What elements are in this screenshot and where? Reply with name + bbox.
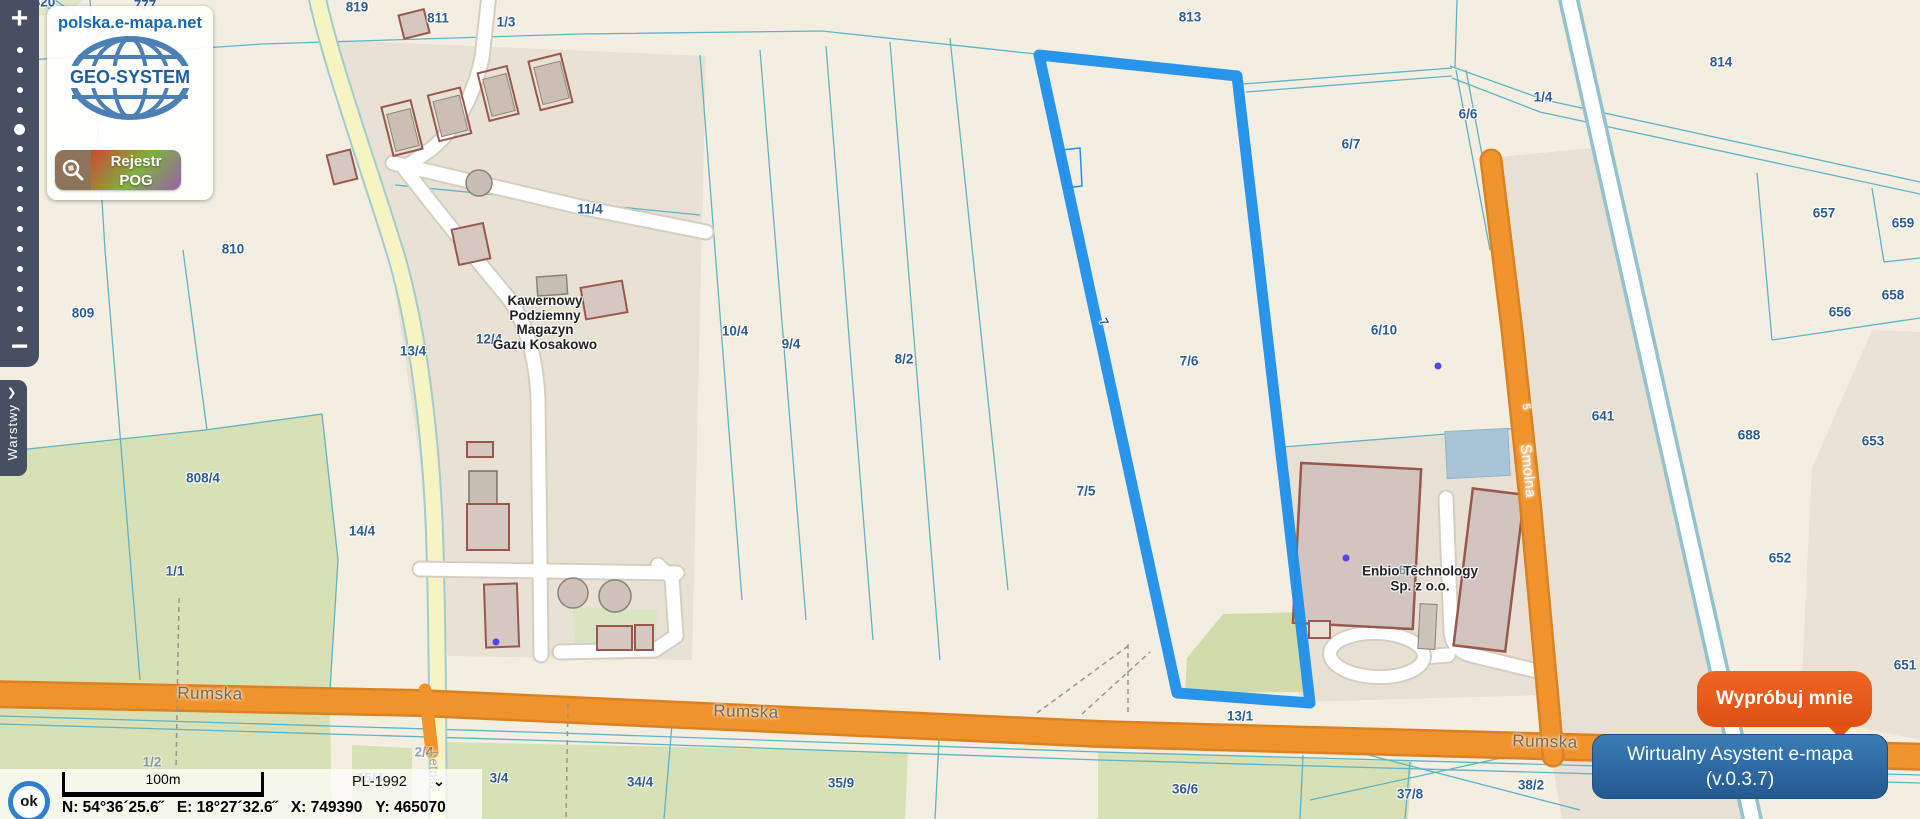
zoom-tick[interactable] [17,87,23,93]
zoom-tick[interactable] [17,286,23,292]
e-mapa-map-viewer: 8207778198111/38138141/46/66/711/4657659… [0,0,1920,819]
zoom-out-button[interactable]: − [0,330,39,366]
try-me-bubble[interactable]: Wypróbuj mnie [1697,671,1872,727]
site-name[interactable]: polska.e-mapa.net [47,14,213,33]
crs-selector[interactable]: PL-1992⌄ [352,774,445,790]
virtual-assistant-button[interactable]: Wirtualny Asystent e-mapa (v.0.3.7) [1592,734,1888,799]
pond [1445,428,1510,478]
chevron-down-icon: ⌄ [433,774,445,790]
scale-label: 100m [65,771,261,787]
branding-card: polska.e-mapa.net GEO-SYSTEM Rejestr POG [47,6,213,200]
coord-n: N: 54°36´25.6˝ [62,799,164,816]
scale-bar: 100m [62,772,264,797]
coordinates-readout: N: 54°36´25.6˝E: 18°27´32.6˝X: 749390Y: … [62,799,459,817]
magnifier-poland-icon [55,150,91,190]
layers-panel-tab[interactable]: ❯ Warstwy [0,380,27,476]
coord-e: E: 18°27´32.6˝ [177,799,278,816]
rejestr-pog-badge[interactable]: Rejestr POG [55,150,181,190]
assistant-title: Wirtualny Asystent e-mapa [1593,742,1887,767]
zoom-toolbar: + − [0,0,39,367]
badge-line2: POG [91,171,181,190]
geo-system-wordmark: GEO-SYSTEM [70,67,190,87]
zoom-tick[interactable] [17,226,23,232]
coord-y: Y: 465070 [375,799,445,816]
badge-line1: Rejestr [91,152,181,171]
layers-tab-label: Warstwy [5,404,20,460]
zoom-slider[interactable] [0,40,39,339]
zoom-tick[interactable] [17,306,23,312]
zoom-tick[interactable] [17,107,23,113]
zoom-in-button[interactable]: + [0,2,39,38]
zoom-tick[interactable] [17,146,23,152]
try-me-label: Wypróbuj mnie [1697,671,1872,727]
zoom-tick[interactable] [17,206,23,212]
zoom-tick[interactable] [17,166,23,172]
zoom-tick[interactable] [17,186,23,192]
coord-x: X: 749390 [291,799,363,816]
zoom-tick[interactable] [17,246,23,252]
chevron-right-icon: ❯ [7,386,16,399]
map-canvas[interactable] [0,0,1920,819]
zoom-tick[interactable] [14,124,25,135]
crs-value: PL-1992 [352,774,407,790]
geo-system-globe-logo: GEO-SYSTEM [66,35,194,121]
ok-button[interactable]: ok [8,781,50,819]
zoom-tick[interactable] [17,47,23,53]
assistant-version: (v.0.3.7) [1593,767,1887,792]
zoom-tick[interactable] [17,266,23,272]
zoom-tick[interactable] [17,67,23,73]
